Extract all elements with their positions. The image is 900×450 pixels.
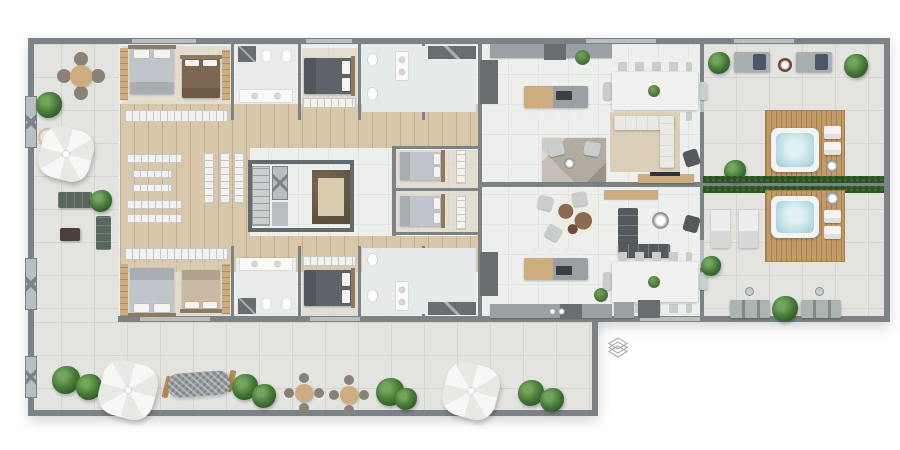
sun-lounger — [711, 210, 730, 248]
deck-tray — [826, 192, 839, 205]
plant — [575, 50, 590, 65]
elevator-shaft — [272, 202, 288, 226]
wardrobe — [120, 264, 128, 316]
armchair — [571, 191, 588, 207]
window — [310, 317, 360, 321]
closet-shelf — [124, 110, 228, 122]
wall-suite — [392, 232, 480, 235]
window — [306, 39, 352, 43]
dining-chair — [603, 82, 612, 100]
toilet — [368, 54, 377, 66]
wall-partition — [358, 246, 361, 320]
window — [734, 39, 794, 43]
bar-stools — [530, 248, 582, 257]
counter-appliance — [638, 300, 660, 318]
fridge — [544, 44, 566, 60]
console — [604, 190, 658, 199]
bed — [304, 270, 352, 306]
wall-terrace-right — [592, 316, 598, 416]
closet-column — [220, 152, 230, 204]
vanity — [396, 52, 408, 80]
plant — [594, 288, 608, 302]
toilet — [262, 50, 271, 62]
shower — [238, 46, 256, 62]
toilet — [368, 88, 377, 100]
deck-cushion — [824, 142, 841, 155]
dining-chair — [699, 82, 708, 100]
sun-lounger — [739, 210, 758, 248]
wall-core — [248, 160, 354, 164]
outdoor-bench — [801, 300, 841, 318]
wardrobe — [222, 50, 230, 100]
sink-basin — [549, 308, 556, 315]
wall-partition — [358, 44, 361, 120]
wall-core — [350, 160, 354, 232]
toilet — [262, 298, 271, 310]
double-vanity — [240, 258, 292, 270]
wall-partition — [231, 44, 234, 120]
outdoor-bench — [730, 300, 770, 318]
bar-stools — [530, 111, 582, 120]
hedge — [703, 176, 884, 183]
centerpiece-plant — [648, 276, 660, 288]
toilet — [368, 254, 377, 266]
shower-row — [428, 46, 476, 59]
closet-shelf — [302, 98, 356, 108]
shower-row — [428, 302, 476, 315]
deck-cushion — [824, 210, 841, 223]
cooktop — [556, 91, 572, 100]
tv — [650, 172, 680, 176]
centerpiece-plant — [648, 85, 660, 97]
counter-block — [614, 302, 634, 318]
layered-diamond-icon — [606, 336, 630, 360]
wardrobe — [222, 264, 230, 314]
window-bay — [25, 258, 37, 310]
bed — [304, 58, 352, 94]
closet-shelf — [126, 214, 182, 223]
sun-lounger — [734, 52, 770, 72]
hammock — [167, 370, 231, 398]
sink-basin — [558, 308, 565, 315]
outdoor-sofa — [96, 216, 111, 250]
armchair — [583, 141, 601, 158]
coffee-table — [564, 158, 575, 169]
closet-island — [132, 170, 172, 178]
wall-suite — [392, 146, 480, 149]
closet-column — [204, 152, 214, 204]
sun-lounger — [796, 52, 832, 72]
floor-plan-render — [0, 0, 900, 450]
shower — [238, 298, 256, 314]
cooktop — [556, 266, 572, 275]
double-vanity — [240, 90, 292, 102]
floor-lamp — [816, 288, 823, 295]
round-table — [652, 212, 669, 229]
wardrobe — [120, 48, 128, 100]
window — [586, 39, 656, 43]
hot-tub — [771, 196, 819, 238]
stairs — [252, 166, 270, 226]
wall-suite — [392, 188, 478, 191]
sectional-sofa — [660, 116, 674, 168]
utility-cabinet — [480, 60, 498, 104]
lobby-rug — [318, 178, 344, 216]
bed — [400, 196, 442, 226]
toilet — [282, 298, 291, 310]
bed — [182, 58, 220, 98]
side-table — [60, 228, 80, 241]
wall-partition — [298, 44, 301, 120]
dining-chairs — [618, 62, 692, 71]
toilet — [282, 50, 291, 62]
bed — [400, 152, 442, 180]
dining-chair — [603, 272, 612, 290]
window — [140, 317, 210, 321]
closet-shelf — [302, 256, 356, 266]
closet-column — [456, 150, 466, 184]
closet-shelf — [126, 154, 182, 163]
watermark-logo — [606, 336, 630, 360]
outdoor-sofa — [58, 192, 92, 208]
closet-island — [132, 184, 172, 192]
closet-column — [234, 152, 244, 204]
deck-tray — [826, 160, 838, 172]
closet-column — [456, 196, 466, 230]
wall-right — [884, 38, 890, 322]
wall-core — [248, 228, 354, 232]
bed — [130, 268, 174, 314]
elevator — [272, 166, 288, 200]
window-bay — [25, 356, 37, 398]
wall-suite — [392, 146, 396, 236]
dining-chairs — [618, 252, 692, 261]
bed — [182, 270, 220, 310]
patio-table — [295, 384, 313, 402]
deck-cushion — [824, 126, 841, 139]
closet-shelf — [126, 200, 182, 209]
outdoor-dining-table — [70, 65, 92, 87]
patio-table — [340, 386, 358, 404]
bed — [130, 48, 174, 94]
hot-tub — [771, 128, 819, 172]
side-table-round — [778, 58, 792, 72]
window — [132, 39, 196, 43]
floor-lamp — [746, 288, 753, 295]
vanity — [396, 282, 408, 310]
closet-shelf — [124, 248, 228, 260]
toilet — [368, 290, 377, 302]
wall-partition — [298, 246, 301, 320]
utility-cabinet — [480, 252, 498, 296]
wall-partition — [231, 246, 234, 320]
deck-cushion — [824, 226, 841, 239]
